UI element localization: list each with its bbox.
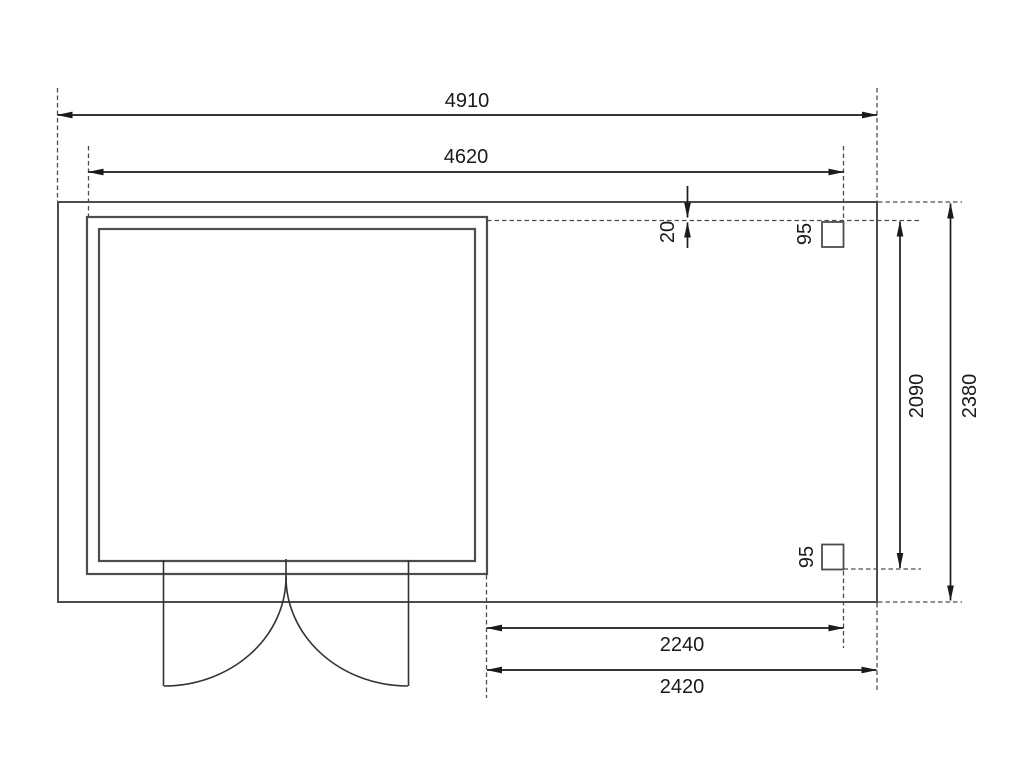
post-bottom-right: [822, 545, 844, 570]
label-cabin-width: 4620: [444, 146, 489, 168]
door-swing-arc-left: [164, 577, 286, 686]
cabin-outer-wall: [87, 217, 487, 574]
label-post-size-bottom: 95: [796, 546, 818, 568]
label-overall-depth: 2380: [959, 374, 981, 419]
double-door: [164, 559, 409, 686]
floor-plan-drawing: 4910 4620 20 95 95 2090 2380 2240 2420: [0, 0, 1024, 768]
post-top-right: [822, 222, 844, 247]
label-front-offset: 20: [657, 221, 679, 243]
label-annex-width-total: 2420: [660, 676, 705, 698]
label-post-size-top: 95: [794, 223, 816, 245]
label-annex-width-to-post: 2240: [660, 634, 705, 656]
platform: [58, 202, 877, 602]
extension-lines: [58, 88, 963, 698]
label-overall-width: 4910: [445, 90, 490, 112]
door-swing-arc-right: [286, 577, 408, 686]
cabin-interior: [99, 229, 475, 561]
label-post-span-depth: 2090: [906, 374, 928, 419]
structure: [58, 202, 877, 602]
posts: [822, 222, 844, 570]
floor-plan-page: 4910 4620 20 95 95 2090 2380 2240 2420: [0, 0, 1024, 768]
dimension-lines: [58, 115, 951, 670]
